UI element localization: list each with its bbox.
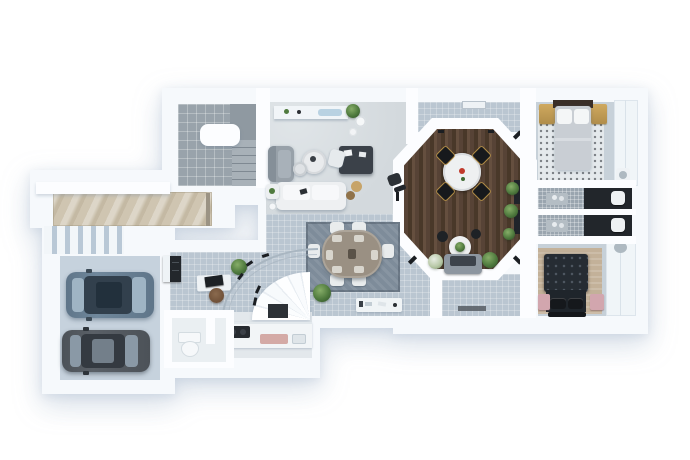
plant-pale xyxy=(428,254,443,269)
bed-bottom-bench xyxy=(548,312,586,317)
armchair-back xyxy=(268,146,276,182)
fan-dark-panel xyxy=(268,304,288,318)
cabinet-line xyxy=(172,270,179,271)
shelf-tray xyxy=(318,109,342,116)
bed-top-pillow xyxy=(574,109,589,124)
bed-bottom-pillow xyxy=(550,298,566,309)
plant xyxy=(482,252,498,268)
garage-gate-slats xyxy=(44,226,124,254)
car-sedan-rear-window xyxy=(70,335,81,367)
car-suv-mirror xyxy=(86,317,92,321)
spotlight xyxy=(438,130,444,133)
table-green-item xyxy=(461,177,465,181)
car-sedan-mirror xyxy=(83,327,89,331)
car-suv-rear-window xyxy=(72,278,84,312)
shelf-dark-item xyxy=(297,110,301,114)
wall-hall-dining xyxy=(430,272,442,318)
corridor-vent xyxy=(462,101,486,109)
sofa-cushion xyxy=(312,185,339,200)
car-suv-mirror xyxy=(86,269,92,273)
armchair-cushion xyxy=(278,150,291,178)
media-console xyxy=(356,298,402,312)
dining-table xyxy=(322,230,382,278)
car-sedan xyxy=(62,330,150,372)
coffee-table-small xyxy=(293,162,307,176)
wall-bath-mid xyxy=(534,209,636,215)
floor-lamp xyxy=(268,202,277,211)
wall-right-wing-divider xyxy=(520,88,536,318)
placemat xyxy=(332,235,342,242)
cabinet-white-panel xyxy=(163,256,170,282)
dining-chair xyxy=(382,244,394,258)
placemat xyxy=(371,250,378,260)
car-sedan-windshield xyxy=(125,335,138,367)
placemat xyxy=(332,266,342,273)
pouf-brown xyxy=(346,191,355,200)
cabinet-line xyxy=(172,262,179,263)
wall-living-corridor xyxy=(406,88,418,144)
stool-dark xyxy=(471,229,481,239)
powder-room-divider xyxy=(206,310,215,344)
chrome-fixture xyxy=(552,195,557,200)
nightstand-pink xyxy=(538,294,550,310)
table-centerpiece xyxy=(348,249,356,259)
table-red-dish xyxy=(459,168,465,174)
nightstand-gold xyxy=(591,104,607,124)
armchair xyxy=(268,146,294,182)
car-suv-sunroof xyxy=(96,282,122,308)
placemat xyxy=(354,235,364,242)
bed-bottom-headboard xyxy=(544,254,588,292)
car-sedan-cabin-glass xyxy=(92,339,114,363)
pink-board xyxy=(260,334,288,344)
bed-top-pillow xyxy=(557,109,572,124)
side-table-plant xyxy=(269,188,275,194)
car-suv xyxy=(66,272,154,318)
office-chair-brown xyxy=(209,288,224,303)
wall-bath-bottom xyxy=(534,236,636,244)
bathroom-upper-mat xyxy=(546,193,568,205)
car-sedan-mirror xyxy=(83,371,89,375)
console-knob xyxy=(393,303,397,307)
plant xyxy=(455,242,465,252)
plant xyxy=(506,182,519,195)
bathroom-lower-toilet xyxy=(611,218,625,232)
kitchen-sink xyxy=(292,334,306,344)
doormat xyxy=(458,306,486,311)
stair-landing xyxy=(200,124,240,146)
burner xyxy=(240,329,246,335)
desk-paper xyxy=(359,152,366,158)
bathroom-upper-toilet xyxy=(611,191,625,205)
chrome-fixture xyxy=(559,223,564,228)
stool-dark xyxy=(437,231,448,242)
closet-bottom xyxy=(606,240,636,316)
chrome-fixture xyxy=(559,196,564,201)
placemat xyxy=(326,250,333,260)
front-door-frame xyxy=(206,193,210,226)
placemat xyxy=(354,266,364,273)
office-cabinet xyxy=(163,256,181,282)
shelf-green-item xyxy=(284,109,289,114)
spotlight xyxy=(396,192,399,201)
console-panel xyxy=(365,302,372,306)
octagon-sofa-cushion xyxy=(450,256,476,266)
basin-bowl xyxy=(619,171,627,179)
kettle-small xyxy=(349,128,357,136)
pouf-tan xyxy=(351,181,362,192)
coffee-table-item xyxy=(310,156,316,162)
spotlight xyxy=(488,130,494,133)
nightstand-pink xyxy=(590,294,604,310)
plant xyxy=(503,228,515,240)
kettle xyxy=(355,116,366,127)
plant xyxy=(504,204,518,218)
floorplan-canvas xyxy=(0,0,690,460)
wall-bath-top xyxy=(534,180,636,188)
bathroom-lower-mat xyxy=(546,220,568,232)
bed-bottom-pillow xyxy=(568,298,583,309)
walkway-ledge xyxy=(36,182,170,194)
living-desk xyxy=(339,146,373,174)
walkway-marble-path xyxy=(53,192,212,226)
bed-top-blanket-fold xyxy=(555,138,591,141)
console-item xyxy=(378,301,387,306)
building xyxy=(0,0,690,460)
chrome-fixture xyxy=(552,222,557,227)
white-sofa xyxy=(276,182,346,210)
console-item xyxy=(359,301,363,307)
car-suv-windshield xyxy=(132,277,146,313)
